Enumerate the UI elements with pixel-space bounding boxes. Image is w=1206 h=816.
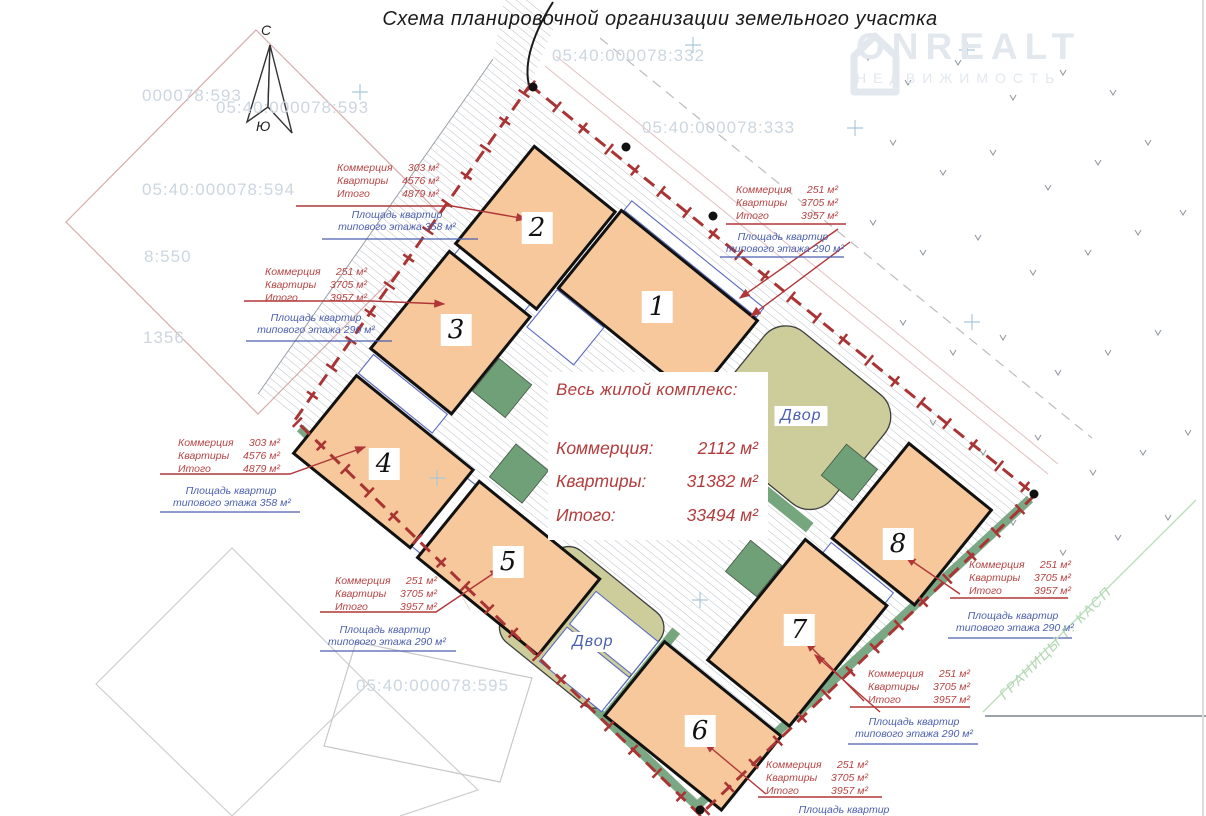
summary-row: Коммерция: 2112 м² [548, 438, 768, 459]
floor-note-building-2: Площадь квартиртипового этажа 358 м² [334, 209, 460, 233]
building-2-number: 2 [522, 212, 553, 244]
complex-summary-box: Весь жилой комплекс: Коммерция: 2112 м² … [548, 372, 768, 540]
sheet-right-edge [1202, 0, 1204, 816]
summary-title: Весь жилой комплекс: [548, 372, 768, 400]
house-icon [846, 28, 904, 98]
cadastral-number: 05:40:000078:593 [216, 98, 369, 118]
annotation-building-8: Коммерция251 м² Квартиры3705 м² Итого395… [969, 559, 1071, 598]
annotation-building-6: Коммерция251 м² Квартиры3705 м² Итого395… [766, 759, 868, 798]
building-1-number: 1 [642, 291, 673, 323]
compass-south-label: Ю [256, 118, 270, 134]
annotation-building-3: Коммерция251 м² Квартиры3705 м² Итого395… [265, 266, 367, 305]
site-plan-sheet: Схема планировочной организации земельно… [0, 0, 1206, 816]
building-6-number: 6 [685, 715, 716, 747]
floor-note-building-7: Площадь квартиртипового этажа 290 м² [854, 716, 974, 740]
summary-row: Квартиры: 31382 м² [548, 471, 768, 492]
building-7-number: 7 [784, 614, 815, 646]
floor-note-building-4: Площадь квартиртипового этажа 358 м² [173, 485, 289, 509]
onrealt-logo: ONREALT НЕДВИЖИМОСТЬ [846, 28, 1186, 86]
courtyard-upper-label: Двор [774, 406, 827, 426]
summary-row: Итого: 33494 м² [548, 505, 768, 526]
floor-note-building-5: Площадь квартиртипового этажа 290 м² [328, 624, 442, 648]
courtyard-lower-label: Двор [566, 632, 619, 652]
floor-note-building-8: Площадь квартиртипового этажа 290 м² [956, 610, 1070, 634]
annotation-building-1: Коммерция251 м² Квартиры3705 м² Итого395… [736, 184, 838, 223]
cadastral-number: 05:40:000078:595 [356, 676, 509, 696]
annotation-building-4: Коммерция303 м² Квартиры4576 м² Итого487… [178, 437, 280, 476]
cadastral-number: 8:550 [144, 247, 192, 267]
cadastral-number: 05:40:000078:594 [142, 180, 295, 200]
cadastral-number: 05:40:000078:332 [552, 46, 705, 66]
building-5-number: 5 [493, 546, 524, 578]
annotation-building-7: Коммерция251 м² Квартиры3705 м² Итого395… [868, 668, 970, 707]
building-4-number: 4 [369, 448, 400, 480]
annotation-building-2: Коммерция303 м² Квартиры4576 м² Итого487… [337, 162, 439, 201]
floor-note-building-3: Площадь квартиртипового этажа 290 м² [256, 312, 376, 336]
compass-north-label: С [261, 22, 271, 38]
annotation-building-5: Коммерция251 м² Квартиры3705 м² Итого395… [335, 575, 437, 614]
building-8-number: 8 [883, 528, 914, 560]
floor-note-building-6: Площадь квартир [788, 804, 900, 816]
building-3-number: 3 [441, 314, 472, 346]
cadastral-number: 05:40:000078:333 [642, 118, 795, 138]
floor-note-building-1: Площадь квартиртипового этажа 290 м² [726, 231, 840, 255]
cadastral-number: 1356 [143, 328, 185, 348]
